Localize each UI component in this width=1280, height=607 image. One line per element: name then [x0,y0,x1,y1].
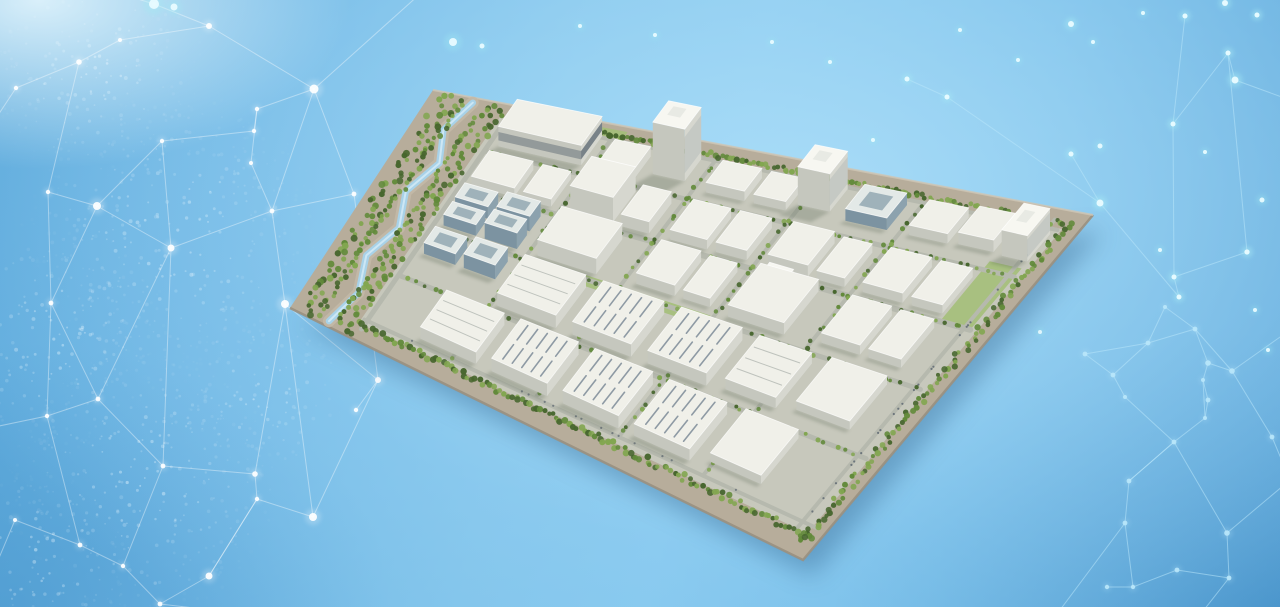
hero-background [0,0,1280,607]
industrial-park-3d-render [0,0,1280,607]
